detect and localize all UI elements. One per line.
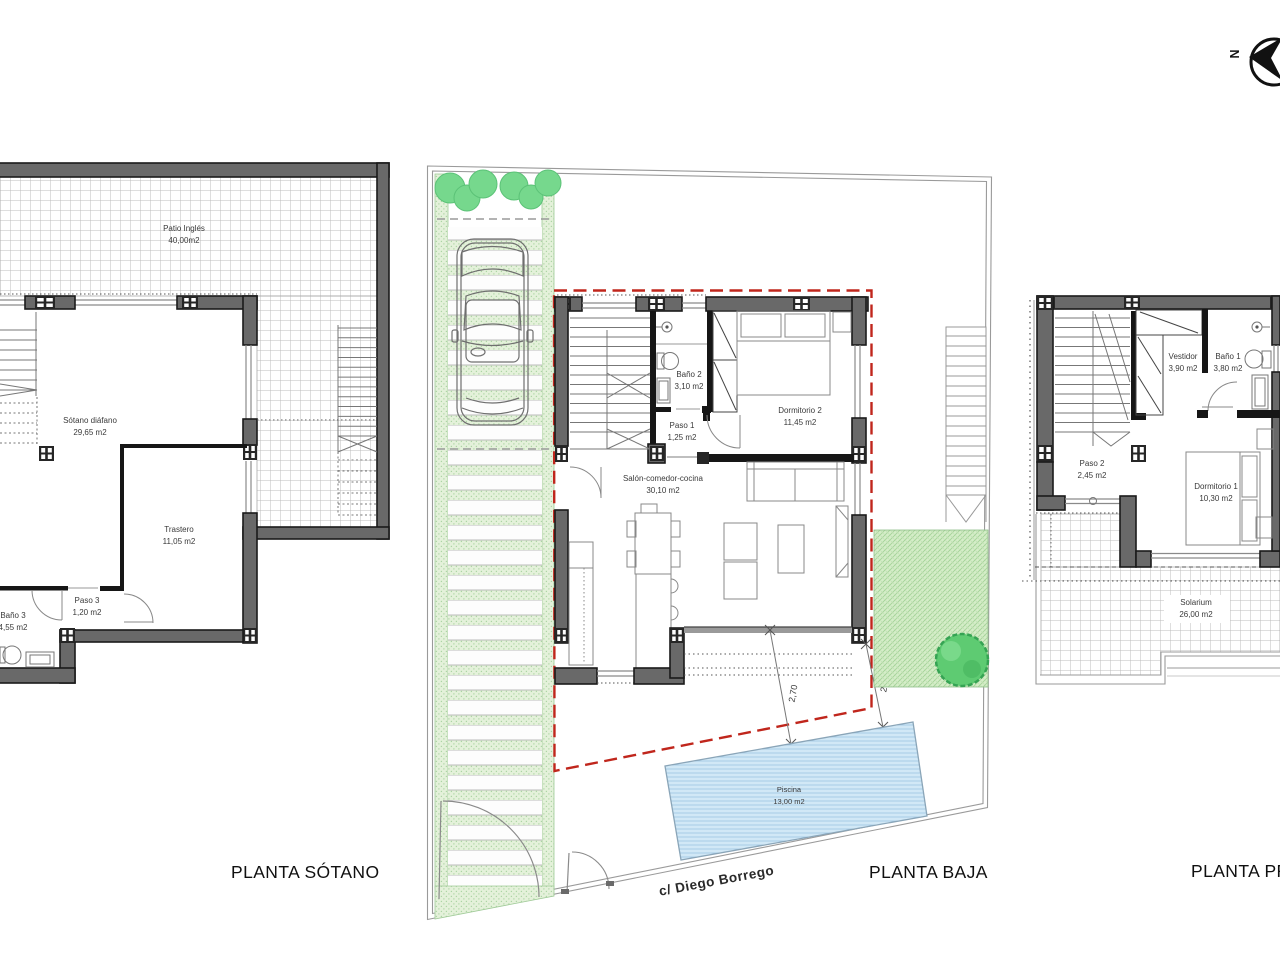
svg-text:Solarium: Solarium (1180, 598, 1212, 607)
svg-text:Dormitorio 2: Dormitorio 2 (778, 406, 822, 415)
svg-text:1,25 m2: 1,25 m2 (668, 433, 697, 442)
svg-text:PLANTA PRIMERA: PLANTA PRIMERA (1191, 861, 1280, 881)
svg-text:Baño 1: Baño 1 (1215, 352, 1241, 361)
svg-text:40,00m2: 40,00m2 (168, 236, 200, 245)
svg-text:PLANTA BAJA: PLANTA BAJA (869, 862, 988, 882)
svg-text:N: N (1228, 49, 1242, 58)
svg-text:26,00 m2: 26,00 m2 (1179, 610, 1213, 619)
svg-text:Paso 2: Paso 2 (1080, 459, 1105, 468)
svg-text:Dormitorio 1: Dormitorio 1 (1194, 482, 1238, 491)
svg-text:3,10 m2: 3,10 m2 (675, 382, 704, 391)
svg-text:11,45 m2: 11,45 m2 (784, 418, 817, 427)
svg-text:3,90 m2: 3,90 m2 (1169, 364, 1198, 373)
svg-text:Sótano diáfano: Sótano diáfano (63, 416, 117, 425)
svg-text:Paso 1: Paso 1 (670, 421, 695, 430)
svg-text:Piscina: Piscina (777, 785, 802, 794)
svg-text:2,45 m2: 2,45 m2 (1078, 471, 1107, 480)
svg-text:30,10 m2: 30,10 m2 (646, 486, 680, 495)
svg-text:13,00 m2: 13,00 m2 (773, 797, 804, 806)
svg-text:Baño 2: Baño 2 (676, 370, 702, 379)
svg-text:1,20 m2: 1,20 m2 (73, 608, 102, 617)
svg-text:Paso 3: Paso 3 (75, 596, 100, 605)
svg-text:Trastero: Trastero (164, 525, 194, 534)
svg-text:Baño 3: Baño 3 (0, 611, 26, 620)
svg-text:Vestidor: Vestidor (1169, 352, 1198, 361)
svg-text:3,80 m2: 3,80 m2 (1214, 364, 1243, 373)
svg-text:4,55 m2: 4,55 m2 (0, 623, 28, 632)
svg-text:29,65 m2: 29,65 m2 (73, 428, 107, 437)
svg-text:PLANTA SÓTANO: PLANTA SÓTANO (231, 861, 379, 882)
svg-text:Salón-comedor-cocina: Salón-comedor-cocina (623, 474, 704, 483)
svg-text:Patio Inglés: Patio Inglés (163, 224, 205, 233)
svg-text:10,30 m2: 10,30 m2 (1199, 494, 1233, 503)
svg-text:11,05 m2: 11,05 m2 (163, 537, 196, 546)
